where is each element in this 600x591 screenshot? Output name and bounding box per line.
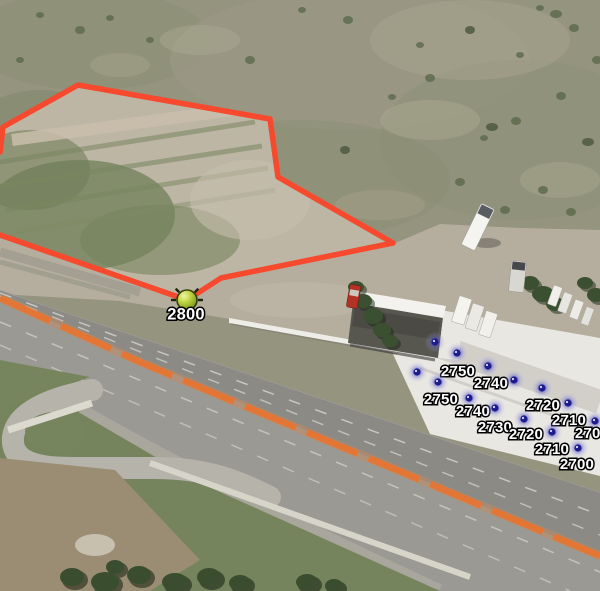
- elevation-marker[interactable]: 2720: [526, 378, 560, 414]
- elevation-marker-highlight: [512, 378, 514, 380]
- elevation-marker-highlight: [455, 351, 457, 353]
- elevation-marker-dot[interactable]: [574, 444, 581, 451]
- elevation-marker-dot[interactable]: [434, 378, 441, 385]
- elevation-marker-highlight: [493, 406, 495, 408]
- elevation-marker-highlight: [436, 380, 438, 382]
- elevation-marker-highlight: [550, 430, 552, 432]
- elevation-marker-highlight: [433, 340, 435, 342]
- elevation-marker-highlight: [566, 401, 568, 403]
- elevation-marker-highlight: [486, 364, 488, 366]
- parcel-outline[interactable]: [0, 85, 393, 300]
- elevation-marker[interactable]: 2740: [456, 388, 490, 420]
- elevation-label[interactable]: 2730: [478, 419, 512, 436]
- elevation-marker-dot[interactable]: [564, 399, 571, 406]
- elevation-marker-highlight: [540, 386, 542, 388]
- elevation-label[interactable]: 2700: [560, 456, 594, 473]
- elevation-marker-highlight: [576, 446, 578, 448]
- elevation-label[interactable]: 2750: [424, 391, 458, 408]
- elevation-marker-highlight: [593, 419, 595, 421]
- elevation-marker-highlight: [522, 417, 524, 419]
- elevation-marker-highlight: [415, 370, 417, 372]
- elevation-marker-dot[interactable]: [465, 394, 472, 401]
- map-canvas[interactable]: 2750274027502720274027102730272027002710…: [0, 0, 600, 591]
- elevation-marker[interactable]: [407, 362, 428, 383]
- elevation-marker[interactable]: [425, 332, 446, 353]
- elevation-marker-dot[interactable]: [520, 415, 527, 422]
- reference-marker-tick: [176, 289, 180, 293]
- elevation-marker[interactable]: [504, 370, 525, 391]
- elevation-marker-dot[interactable]: [510, 376, 517, 383]
- elevation-marker-dot[interactable]: [413, 368, 420, 375]
- elevation-marker-dot[interactable]: [484, 362, 491, 369]
- reference-label[interactable]: 2800: [167, 305, 205, 323]
- elevation-label[interactable]: 2740: [474, 375, 508, 392]
- map-overlays: 2750274027502720274027102730272027002710…: [0, 0, 600, 591]
- elevation-marker[interactable]: 2740: [474, 356, 508, 392]
- elevation-marker-dot[interactable]: [548, 428, 555, 435]
- elevation-marker-dot[interactable]: [491, 404, 498, 411]
- elevation-marker-highlight: [467, 396, 469, 398]
- elevation-marker-dot[interactable]: [591, 417, 598, 424]
- elevation-marker[interactable]: 2750: [441, 343, 475, 380]
- elevation-marker-dot[interactable]: [453, 349, 460, 356]
- elevation-marker-dot[interactable]: [538, 384, 545, 391]
- elevation-marker-dot[interactable]: [431, 338, 438, 345]
